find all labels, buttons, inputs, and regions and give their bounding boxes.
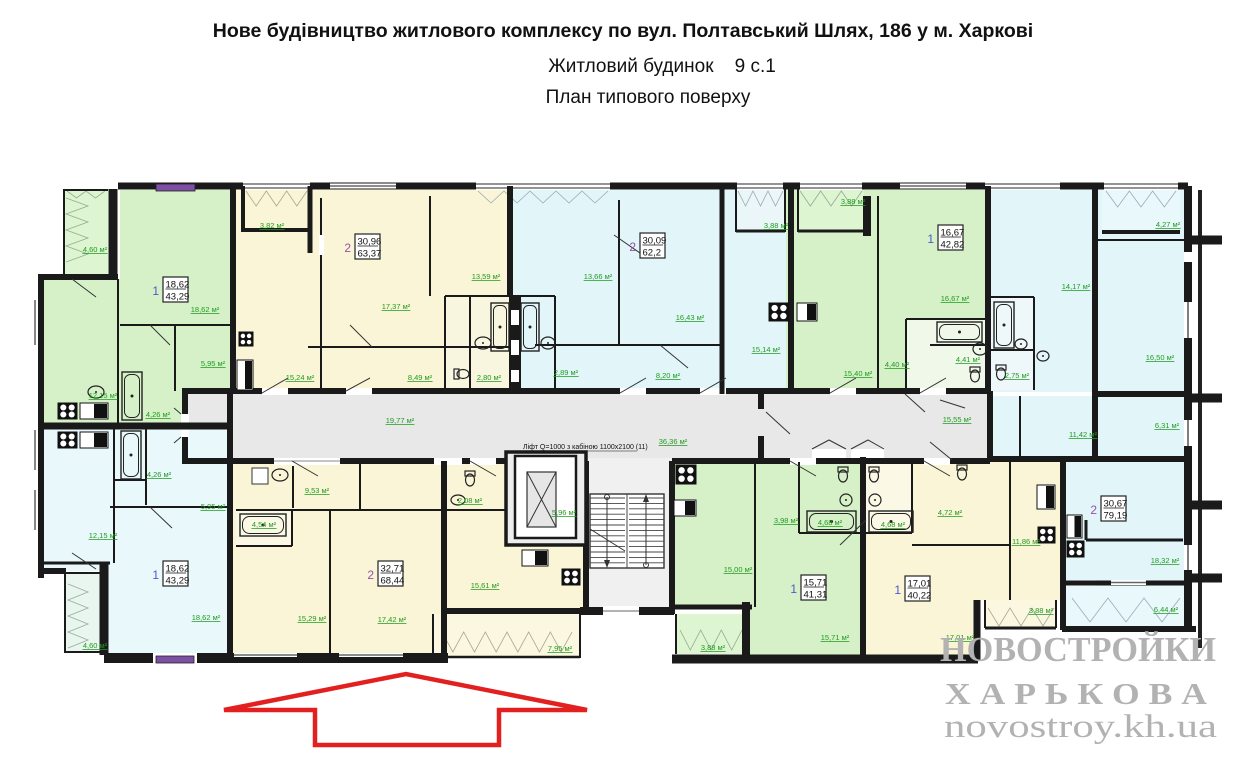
svg-text:14,17 м²: 14,17 м² (1062, 282, 1091, 291)
svg-text:4,54 м²: 4,54 м² (252, 520, 277, 529)
svg-text:9,53 м²: 9,53 м² (305, 486, 330, 495)
svg-text:7,95 м²: 7,95 м² (548, 644, 573, 653)
svg-text:5,96 м²: 5,96 м² (552, 508, 577, 517)
svg-text:68,44: 68,44 (381, 576, 405, 587)
svg-text:13,59 м²: 13,59 м² (472, 272, 501, 281)
svg-text:18,62 м²: 18,62 м² (192, 613, 221, 622)
svg-text:3,98 м²: 3,98 м² (774, 516, 799, 525)
svg-text:3,82 м²: 3,82 м² (260, 221, 285, 230)
svg-text:15,40 м²: 15,40 м² (844, 369, 873, 378)
svg-text:36,36 м²: 36,36 м² (659, 437, 688, 446)
svg-text:6,31 м²: 6,31 м² (1155, 421, 1180, 430)
svg-text:1: 1 (152, 284, 159, 298)
svg-text:3,88 м²: 3,88 м² (841, 197, 866, 206)
svg-text:11,86 м²: 11,86 м² (1012, 537, 1040, 546)
svg-text:4,68 м²: 4,68 м² (818, 518, 843, 527)
svg-text:13,66 м²: 13,66 м² (584, 272, 613, 281)
svg-text:4,26 м²: 4,26 м² (147, 470, 172, 479)
svg-text:1: 1 (790, 582, 797, 596)
svg-text:1: 1 (152, 568, 159, 582)
svg-text:1: 1 (894, 583, 901, 597)
svg-text:17,42 м²: 17,42 м² (378, 615, 407, 624)
svg-text:3,88 м²: 3,88 м² (764, 221, 789, 230)
svg-text:4,60 м²: 4,60 м² (83, 641, 108, 650)
svg-text:2,08 м²: 2,08 м² (458, 496, 483, 505)
svg-text:2: 2 (629, 240, 636, 254)
svg-text:1: 1 (927, 232, 934, 246)
svg-text:2,89 м²: 2,89 м² (554, 368, 579, 377)
svg-text:63,37: 63,37 (358, 249, 382, 260)
svg-text:4,40 м²: 4,40 м² (885, 360, 910, 369)
svg-text:4,68 м²: 4,68 м² (881, 520, 906, 529)
svg-text:Житловий будинок 9 с.1: Житловий будинок 9 с.1 (548, 56, 776, 77)
svg-text:16,67 м²: 16,67 м² (941, 294, 970, 303)
svg-text:2: 2 (1090, 503, 1097, 517)
svg-text:15,55 м²: 15,55 м² (943, 415, 972, 424)
svg-text:5,95 м²: 5,95 м² (201, 359, 226, 368)
svg-text:19,77 м²: 19,77 м² (386, 416, 415, 425)
svg-text:Ліфт Q=1000 з кабіною 1100х210: Ліфт Q=1000 з кабіною 1100х2100 (11) (523, 443, 648, 451)
svg-text:4,60 м²: 4,60 м² (83, 245, 108, 254)
svg-text:43,29: 43,29 (166, 292, 190, 303)
svg-text:8,49 м²: 8,49 м² (408, 373, 433, 382)
svg-text:4,26 м²: 4,26 м² (146, 410, 171, 419)
svg-text:3,88 м²: 3,88 м² (1029, 606, 1054, 615)
svg-text:novostroy.kh.ua: novostroy.kh.ua (944, 709, 1217, 745)
svg-text:2: 2 (344, 241, 351, 255)
svg-text:15,61 м²: 15,61 м² (471, 581, 500, 590)
svg-text:62,2: 62,2 (643, 248, 662, 259)
svg-text:4,27 м²: 4,27 м² (1156, 220, 1181, 229)
svg-text:15,14 м²: 15,14 м² (752, 345, 781, 354)
svg-text:11,42 м²: 11,42 м² (1069, 430, 1097, 439)
svg-text:12,15 м²: 12,15 м² (89, 531, 118, 540)
svg-text:17,37 м²: 17,37 м² (382, 302, 411, 311)
svg-text:Х А Р Ь К О В А: Х А Р Ь К О В А (945, 676, 1208, 711)
svg-text:4,41 м²: 4,41 м² (956, 355, 981, 364)
svg-text:43,29: 43,29 (166, 576, 190, 587)
svg-text:6,44 м²: 6,44 м² (1154, 605, 1179, 614)
svg-text:15,00 м²: 15,00 м² (724, 565, 753, 574)
svg-text:16,50 м²: 16,50 м² (1146, 353, 1175, 362)
svg-text:3,88 м²: 3,88 м² (701, 643, 726, 652)
svg-text:План типового поверху: План типового поверху (546, 87, 751, 108)
svg-text:2,75 м²: 2,75 м² (1005, 371, 1030, 380)
svg-text:5,95 м²: 5,95 м² (201, 502, 226, 511)
svg-text:15,24 м²: 15,24 м² (286, 373, 315, 382)
svg-text:42,82: 42,82 (941, 240, 965, 251)
svg-text:41,31: 41,31 (804, 590, 828, 601)
svg-text:Нове будівництво житлового ком: Нове будівництво житлового комплексу по … (213, 20, 1033, 42)
svg-text:2,80 м²: 2,80 м² (477, 373, 502, 382)
svg-text:18,62 м²: 18,62 м² (191, 305, 220, 314)
svg-text:16,43 м²: 16,43 м² (676, 313, 705, 322)
svg-text:2: 2 (367, 568, 374, 582)
svg-text:79,19: 79,19 (1104, 511, 1128, 522)
svg-text:18,32 м²: 18,32 м² (1151, 556, 1180, 565)
svg-text:4,72 м²: 4,72 м² (938, 508, 963, 517)
svg-text:15,71 м²: 15,71 м² (821, 633, 850, 642)
svg-text:НОВОСТРОЙКИ: НОВОСТРОЙКИ (940, 630, 1216, 669)
svg-text:15,29 м²: 15,29 м² (298, 614, 327, 623)
svg-text:8,20 м²: 8,20 м² (656, 371, 681, 380)
svg-text:40,22: 40,22 (908, 591, 932, 602)
svg-text:12,15 м²: 12,15 м² (89, 391, 118, 400)
